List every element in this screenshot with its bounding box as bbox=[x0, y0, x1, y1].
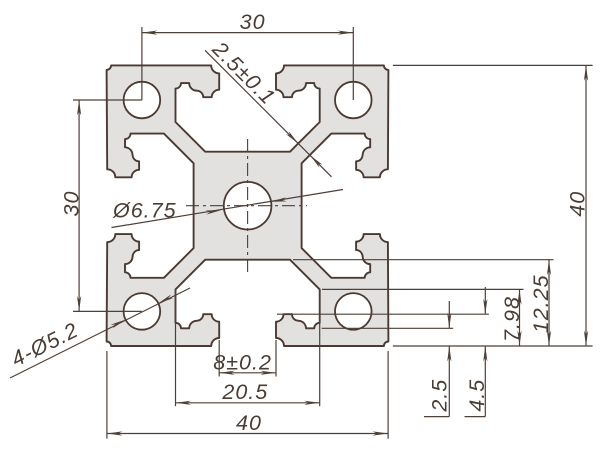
svg-text:2.5: 2.5 bbox=[427, 379, 451, 413]
svg-text:30: 30 bbox=[240, 10, 266, 34]
svg-text:12.25: 12.25 bbox=[529, 274, 553, 333]
svg-text:8±0.2: 8±0.2 bbox=[213, 350, 272, 374]
svg-text:7.98: 7.98 bbox=[500, 296, 524, 342]
svg-text:Ø6.75: Ø6.75 bbox=[112, 199, 177, 223]
svg-text:4.5: 4.5 bbox=[465, 379, 489, 412]
svg-text:20.5: 20.5 bbox=[221, 380, 268, 404]
svg-text:4-Ø5.2: 4-Ø5.2 bbox=[7, 318, 82, 372]
svg-text:40: 40 bbox=[566, 191, 590, 217]
svg-text:30: 30 bbox=[59, 191, 83, 217]
svg-text:40: 40 bbox=[236, 411, 262, 435]
